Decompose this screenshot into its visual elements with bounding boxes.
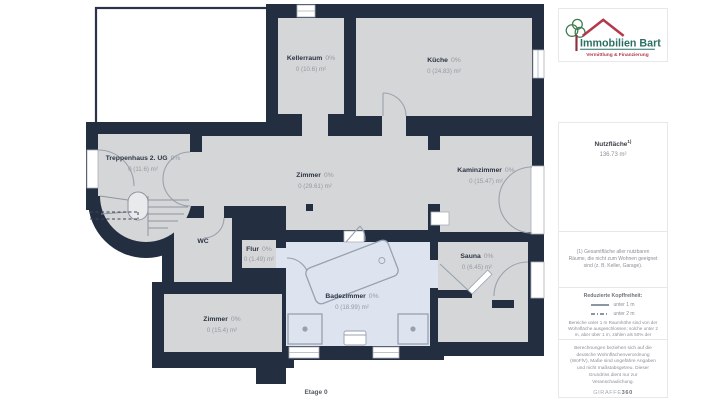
- label-zimmer-bottom: Zimmer0%: [203, 316, 240, 323]
- logo-title: Immobilien Bart: [580, 38, 661, 50]
- label-kueche: Küche0%: [427, 57, 461, 64]
- solid-line-icon: [591, 303, 609, 307]
- legend-label-under-1m: unter 1 m: [613, 302, 634, 308]
- headroom-legend-box: Reduzierte Kopffreiheit: unter 1 m unter…: [558, 287, 668, 340]
- area-summary-label: Nutzfläche1): [559, 139, 667, 148]
- area-kueche: 0 (24.83) m²: [427, 68, 461, 75]
- agency-logo: Immobilien Bart Vermittlung & Finanzieru…: [558, 8, 668, 62]
- terrace-outline: [96, 8, 270, 132]
- room-zimmer-bottom: [164, 294, 282, 352]
- legend-row-under-1m: unter 1 m: [559, 302, 667, 308]
- area-treppenhaus: 0 (11.6) m²: [128, 166, 158, 173]
- label-kaminzimmer: Kaminzimmer0%: [457, 167, 514, 174]
- roof-icon: [583, 20, 624, 36]
- toilet: [344, 331, 366, 345]
- room-kueche: [356, 18, 532, 116]
- footnote-text: (1) Gesamtfläche aller nutzbaren Räume, …: [559, 249, 667, 271]
- disclaimer-box: Berechnungen beziehen sich auf die deuts…: [558, 339, 668, 398]
- area-kaminzimmer: 0 (15.47) m²: [469, 178, 503, 185]
- floor-label: Etage 0: [304, 389, 328, 396]
- legend-title: Reduzierte Kopffreiheit:: [559, 293, 667, 299]
- door-gap-sauna: [531, 262, 544, 298]
- tree-icon: [566, 19, 585, 37]
- label-sauna: Sauna0%: [460, 253, 493, 260]
- area-kellerraum: 0 (10.6) m²: [296, 66, 326, 73]
- label-zimmer-main: Zimmer0%: [296, 172, 333, 179]
- label-kellerraum: Kellerraum0%: [287, 55, 335, 62]
- page: Kellerraum0% 0 (10.6) m² Küche0% 0 (24.8…: [0, 0, 720, 405]
- area-sauna: 0 (6.45) m²: [462, 264, 492, 271]
- label-flur: Flur0%: [246, 246, 272, 253]
- disclaimer-text: Berechnungen beziehen sich auf die deuts…: [559, 346, 667, 386]
- giraffe360-brand: GIRAFFE360: [559, 390, 667, 396]
- door-gap-treppenhaus: [87, 150, 98, 188]
- room-wc: [174, 218, 232, 282]
- area-summary-footnote-marker: 1): [627, 139, 631, 144]
- pillar: [306, 204, 313, 211]
- fireplace: [431, 212, 449, 225]
- info-sidebar: Immobilien Bart Vermittlung & Finanzieru…: [558, 0, 668, 405]
- area-badezimmer: 0 (18.99) m²: [335, 304, 369, 311]
- label-badezimmer: Badezimmer0%: [325, 293, 378, 300]
- legend-label-under-2m: unter 2 m: [613, 311, 634, 317]
- agency-logo-graphic: Immobilien Bart Vermittlung & Finanzieru…: [564, 12, 662, 58]
- area-zimmer-bottom: 0 (15.4) m²: [207, 327, 237, 334]
- room-flur: [242, 240, 276, 268]
- door-gap-kaminzimmer: [531, 166, 544, 234]
- area-summary-value: 136.73 m²: [559, 152, 667, 158]
- floor-plan: Kellerraum0% 0 (10.6) m² Küche0% 0 (24.8…: [0, 0, 555, 405]
- logo-subtitle: Vermittlung & Finanzierung: [586, 52, 648, 58]
- area-zimmer-main: 0 (29.61) m²: [298, 183, 332, 190]
- dash-dot-line-icon: [591, 312, 609, 316]
- footnote-box: (1) Gesamtfläche aller nutzbaren Räume, …: [558, 231, 668, 288]
- area-flur: 0 (1.49) m²: [244, 256, 274, 263]
- window-kueche: [533, 50, 544, 78]
- area-summary-box: Nutzfläche1) 136.73 m²: [558, 122, 668, 232]
- label-wc: WC: [197, 238, 208, 245]
